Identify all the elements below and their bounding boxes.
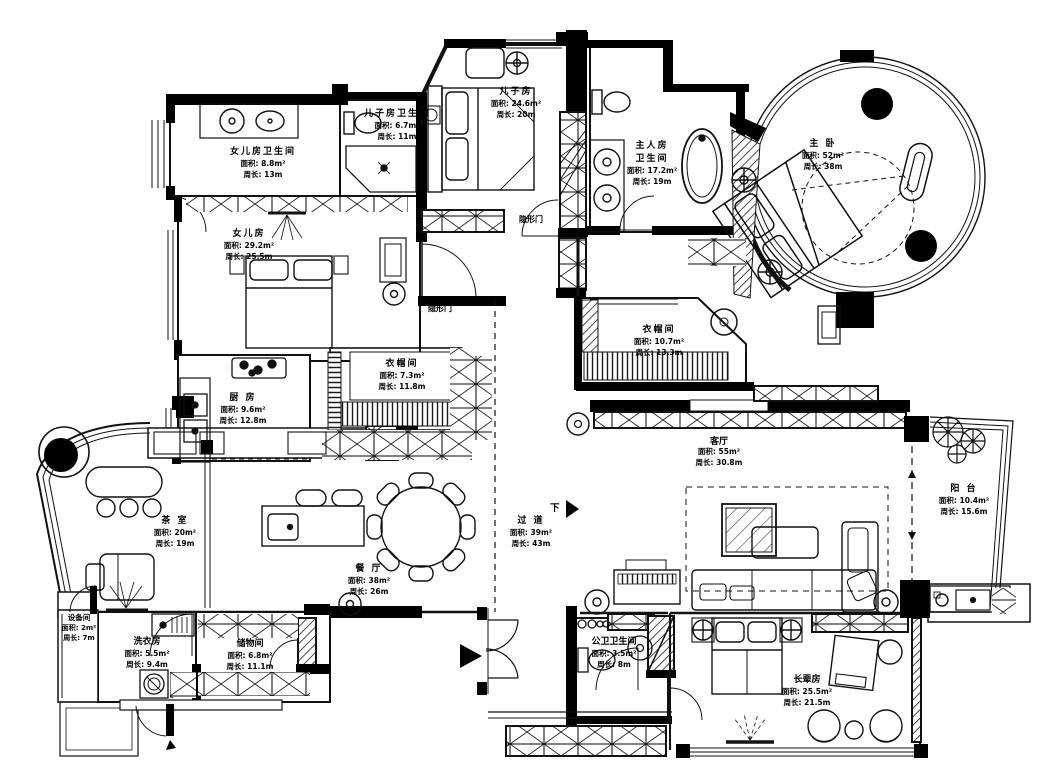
hidden-door-note-upper: 隐形门 [519, 214, 543, 225]
floor-plan-canvas: 女儿房卫生间 面积: 8.8m² 周长: 13m 儿子房卫生间 面积: 6.7m… [0, 0, 1049, 764]
column [861, 88, 893, 120]
sofa [692, 522, 878, 612]
stair-down-note: 下 [550, 500, 560, 514]
room-label-guest-bath: 公卫卫生间 面积: 3.5m² 周长: 8m [591, 634, 636, 671]
ceiling-outline [686, 487, 888, 591]
room-label-tea-room: 茶 室 面积: 20m² 周长: 19m [154, 513, 196, 550]
dresser-inner [822, 312, 836, 338]
tea-room-furniture [39, 427, 162, 614]
room-label-equipment: 设备间 面积: 2m² 周长: 7m [62, 612, 96, 643]
room-label-corridor: 过 道 面积: 39m² 周长: 43m [510, 513, 552, 550]
room-label-master-bath: 主人房 卫生间 面积: 17.2m² 周长: 19m [627, 138, 677, 188]
room-label-living: 客厅 面积: 55m² 周长: 30.8m [696, 434, 743, 469]
room-label-storage: 储物间 面积: 6.8m² 周长: 11.1m [227, 636, 274, 673]
tea-table [86, 467, 162, 497]
entry-arrow [460, 644, 482, 668]
room-label-laundry: 洗衣房 面积: 5.5m² 周长: 9.4m [125, 634, 170, 671]
elder-bed [712, 618, 782, 694]
floor-lamp [897, 141, 934, 203]
room-label-closet-b: 衣帽间 面积: 10.7m² 周长: 13.3m [634, 322, 684, 359]
hidden-door-note-lower: 隐形门 [428, 303, 452, 314]
tv-rays [726, 714, 774, 742]
room-label-daughter-bath: 女儿房卫生间 面积: 8.8m² 周长: 13m [230, 144, 296, 181]
room-label-son-bath: 儿子房卫生间 面积: 6.7m² 周长: 11m [364, 106, 430, 143]
room-label-dining: 餐 厅 面积: 38m² 周长: 26m [348, 561, 390, 598]
tv-cabinet [614, 560, 680, 604]
room-label-kitchen: 厨 房 面积: 9.6m² 周长: 12.8m [220, 390, 267, 427]
room-label-elder-room: 长辈房 面积: 25.5m² 周长: 21.5m [782, 672, 832, 709]
master-bedroom-structure [713, 50, 985, 344]
living-room-furniture [585, 487, 898, 614]
armchair [466, 48, 504, 78]
elder-desk [829, 635, 879, 690]
room-label-master-bedroom: 主 卧 面积: 52m² 周长: 38m [802, 136, 844, 173]
room-label-closet-a: 衣帽间 面积: 7.3m² 周长: 11.8m [379, 356, 426, 393]
column [44, 438, 78, 472]
room-label-daughter-room: 女儿房 面积: 29.2m² 周长: 25.5m [224, 226, 274, 263]
room-label-balcony: 阳 台 面积: 10.4m² 周长: 15.6m [939, 481, 989, 518]
room-label-son-room: 儿子房 面积: 24.6m² 周长: 20m [491, 84, 541, 121]
column [905, 230, 937, 262]
down-arrow [566, 500, 579, 518]
